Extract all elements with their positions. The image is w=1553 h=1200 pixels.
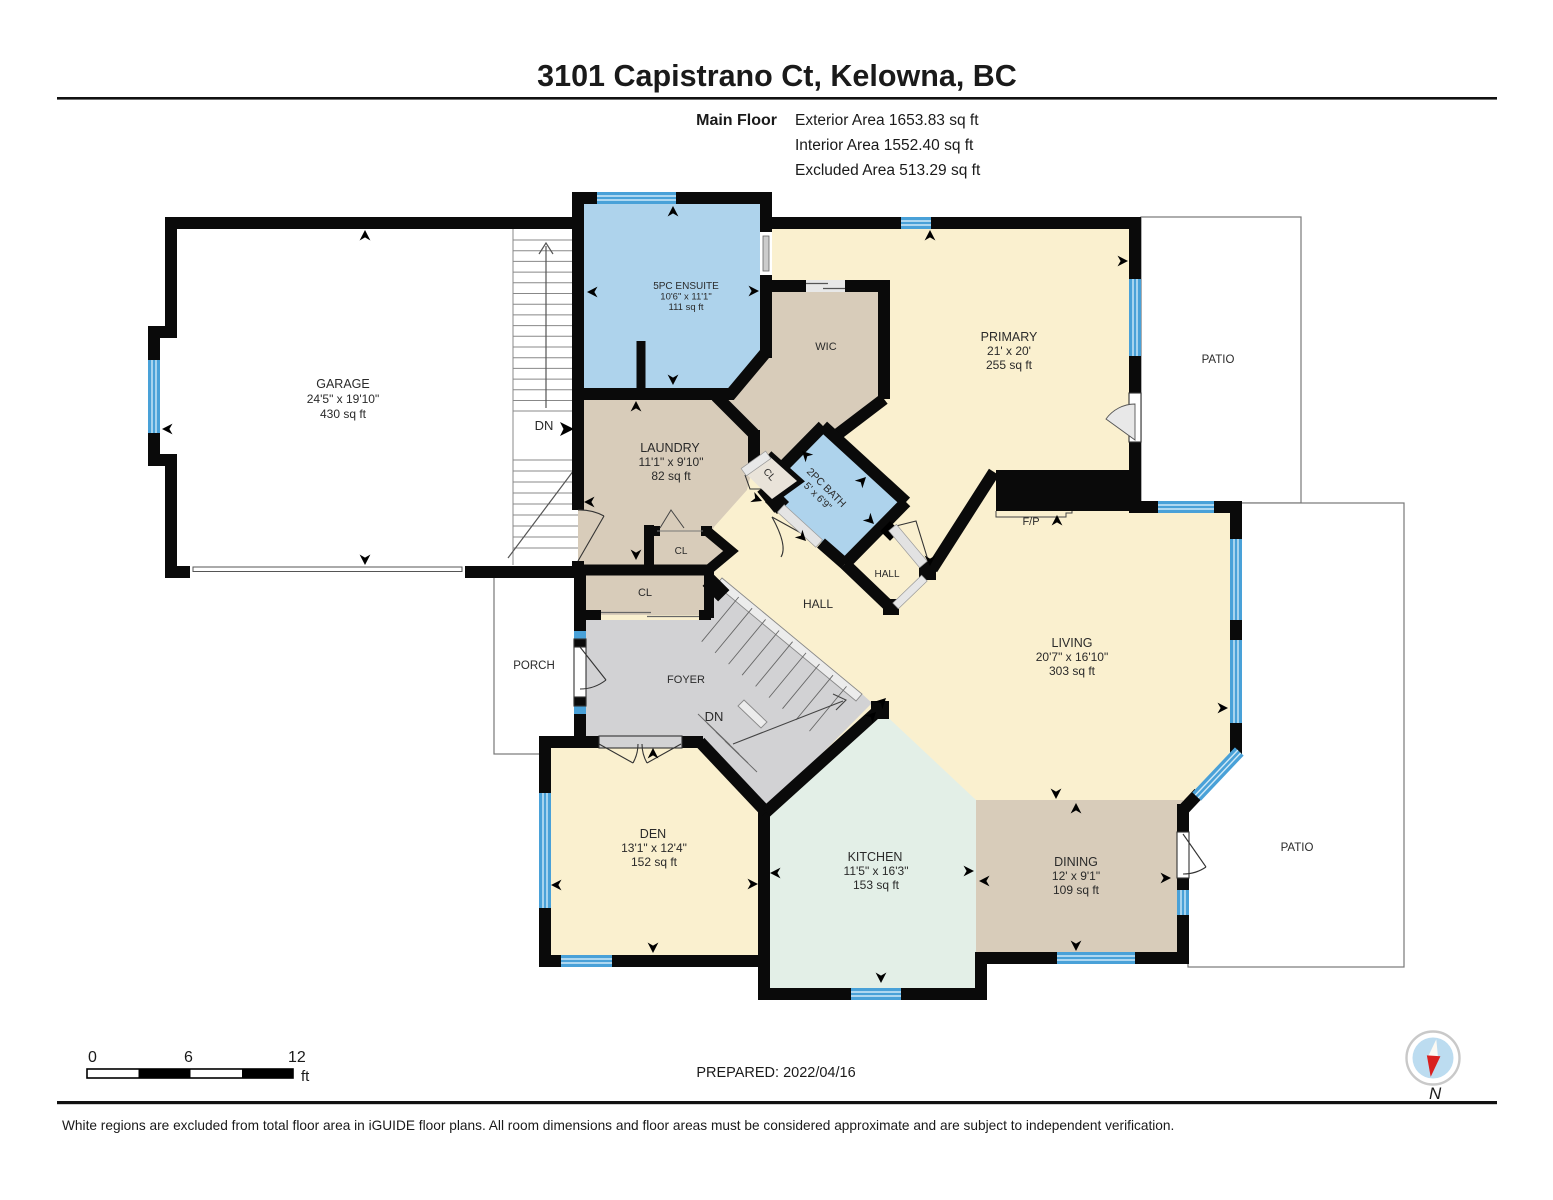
svg-text:11'1" x 9'10": 11'1" x 9'10" <box>639 455 704 469</box>
svg-text:303 sq ft: 303 sq ft <box>1049 664 1096 678</box>
svg-text:HALL: HALL <box>874 569 899 580</box>
svg-text:PORCH: PORCH <box>513 660 555 672</box>
svg-text:10'6" x 11'1": 10'6" x 11'1" <box>660 292 711 303</box>
svg-text:12' x 9'1": 12' x 9'1" <box>1052 869 1100 883</box>
svg-text:LIVING: LIVING <box>1052 636 1093 650</box>
svg-text:F/P: F/P <box>1022 516 1039 528</box>
svg-text:20'7" x 16'10": 20'7" x 16'10" <box>1036 650 1109 664</box>
svg-text:LAUNDRY: LAUNDRY <box>640 441 700 455</box>
svg-text:430 sq ft: 430 sq ft <box>320 407 367 421</box>
svg-text:Excluded Area 513.29 sq ft: Excluded Area 513.29 sq ft <box>795 162 981 179</box>
svg-text:PATIO: PATIO <box>1202 354 1235 366</box>
svg-text:DN: DN <box>535 418 554 433</box>
svg-text:Interior Area 1552.40 sq ft: Interior Area 1552.40 sq ft <box>795 137 974 154</box>
svg-text:GARAGE: GARAGE <box>316 377 370 391</box>
svg-text:111 sq ft: 111 sq ft <box>668 302 703 313</box>
svg-text:255 sq ft: 255 sq ft <box>986 358 1033 372</box>
svg-text:3101 Capistrano Ct, Kelowna, B: 3101 Capistrano Ct, Kelowna, BC <box>537 59 1017 93</box>
svg-text:24'5" x 19'10": 24'5" x 19'10" <box>307 392 380 406</box>
svg-text:5PC ENSUITE: 5PC ENSUITE <box>653 281 719 292</box>
svg-text:11'5" x 16'3": 11'5" x 16'3" <box>844 864 909 878</box>
svg-text:PATIO: PATIO <box>1281 842 1314 854</box>
svg-text:CL: CL <box>638 587 652 599</box>
svg-text:KITCHEN: KITCHEN <box>848 850 903 864</box>
svg-text:21' x 20': 21' x 20' <box>987 344 1031 358</box>
svg-text:PRIMARY: PRIMARY <box>981 330 1038 344</box>
svg-text:CL: CL <box>675 546 688 557</box>
svg-text:DEN: DEN <box>640 827 666 841</box>
svg-text:ft: ft <box>301 1068 310 1085</box>
svg-text:6: 6 <box>184 1049 193 1066</box>
svg-text:12: 12 <box>288 1049 306 1066</box>
svg-text:153 sq ft: 153 sq ft <box>853 878 900 892</box>
svg-text:Main Floor: Main Floor <box>696 112 777 129</box>
svg-text:PREPARED: 2022/04/16: PREPARED: 2022/04/16 <box>696 1065 855 1081</box>
svg-text:Exterior Area 1653.83 sq ft: Exterior Area 1653.83 sq ft <box>795 112 979 129</box>
svg-text:DINING: DINING <box>1054 855 1098 869</box>
svg-text:FOYER: FOYER <box>667 674 705 686</box>
svg-text:152 sq ft: 152 sq ft <box>631 855 678 869</box>
svg-text:HALL: HALL <box>803 597 833 611</box>
svg-text:DN: DN <box>705 709 724 724</box>
svg-text:N: N <box>1429 1084 1442 1103</box>
svg-text:82 sq ft: 82 sq ft <box>651 469 691 483</box>
svg-text:0: 0 <box>88 1049 97 1066</box>
svg-text:White regions are excluded fro: White regions are excluded from total fl… <box>62 1118 1174 1133</box>
svg-text:13'1" x 12'4": 13'1" x 12'4" <box>621 841 687 855</box>
svg-text:109 sq ft: 109 sq ft <box>1053 883 1100 897</box>
svg-text:WIC: WIC <box>815 341 836 353</box>
